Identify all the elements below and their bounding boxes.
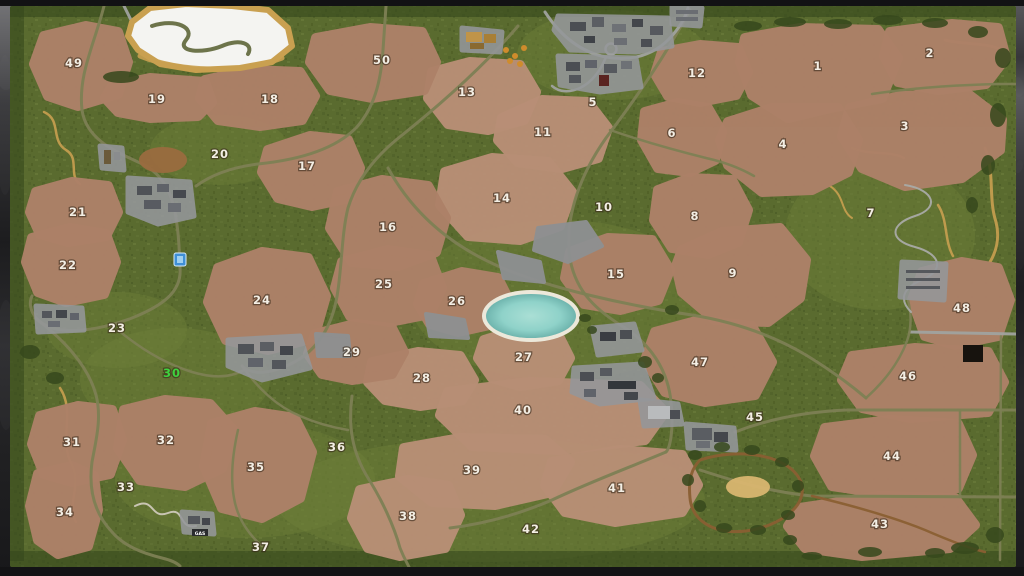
field-label-17: 17 <box>298 159 316 173</box>
field-label-11: 11 <box>534 125 552 139</box>
field-label-3: 3 <box>900 119 909 133</box>
dirt-patch <box>139 147 187 173</box>
field-label-14: 14 <box>493 191 511 205</box>
building <box>648 406 670 419</box>
tree-cluster <box>986 527 1004 543</box>
field-label-41: 41 <box>608 481 626 495</box>
building <box>906 278 940 281</box>
field-label-24: 24 <box>253 293 271 307</box>
field-label-16: 16 <box>379 220 397 234</box>
building <box>248 358 263 367</box>
tree-cluster <box>46 372 64 384</box>
water-station-icon-inner <box>177 256 183 263</box>
building <box>696 441 710 448</box>
tree-cluster <box>792 480 804 492</box>
building <box>470 43 484 49</box>
field-3 <box>842 94 1002 186</box>
material-heap <box>503 47 509 53</box>
building <box>566 62 580 71</box>
building <box>104 150 111 164</box>
settlement <box>462 28 502 52</box>
field-label-29: 29 <box>343 345 361 359</box>
dark-building-marker <box>963 345 983 362</box>
field-9 <box>676 228 806 322</box>
settlement <box>592 324 642 355</box>
field-label-9: 9 <box>728 266 737 280</box>
tree-cluster <box>694 500 706 512</box>
gas-sign-label: GAS <box>195 531 205 537</box>
field-label-2: 2 <box>925 46 934 60</box>
building <box>144 200 161 209</box>
tree-cluster <box>951 542 979 554</box>
building <box>173 190 186 198</box>
field-label-1: 1 <box>813 59 822 73</box>
building <box>466 32 482 42</box>
field-label-15: 15 <box>607 267 625 281</box>
building <box>621 61 632 69</box>
tree-cluster <box>925 548 945 558</box>
building <box>608 381 636 389</box>
material-heap <box>521 45 527 51</box>
building <box>584 36 595 43</box>
building <box>692 428 712 440</box>
field-18 <box>200 70 315 126</box>
field-label-40: 40 <box>514 403 532 417</box>
building <box>906 286 940 289</box>
field-label-45: 45 <box>746 410 764 424</box>
tree-cluster <box>783 535 797 545</box>
tree-cluster <box>990 103 1006 127</box>
field-label-7: 7 <box>866 206 875 220</box>
field-label-37: 37 <box>252 540 270 554</box>
building <box>42 311 52 318</box>
building <box>600 368 612 376</box>
building <box>114 152 120 160</box>
field-label-31: 31 <box>63 435 81 449</box>
field-label-28: 28 <box>413 371 431 385</box>
settlement <box>36 306 84 332</box>
building <box>188 516 200 524</box>
building <box>260 342 274 351</box>
tree-cluster <box>638 356 652 368</box>
screenshot-root: GAS1234567891011121314151617181920212223… <box>0 0 1024 576</box>
field-2 <box>884 24 1006 90</box>
tree-cluster <box>966 197 978 213</box>
field-label-18: 18 <box>261 92 279 106</box>
building <box>906 270 940 273</box>
field-label-46: 46 <box>899 369 917 383</box>
top-border <box>0 0 1024 6</box>
field-label-23: 23 <box>108 321 126 335</box>
building <box>614 38 627 45</box>
field-label-4: 4 <box>778 137 787 151</box>
building <box>569 75 581 83</box>
field-label-21: 21 <box>69 205 87 219</box>
building <box>585 60 597 68</box>
field-label-39: 39 <box>463 463 481 477</box>
tree-cluster <box>858 547 882 557</box>
map-area: GAS1234567891011121314151617181920212223… <box>10 4 1016 567</box>
settlement <box>640 400 682 426</box>
field-label-36: 36 <box>328 440 346 454</box>
field-13 <box>428 62 536 130</box>
field-label-13: 13 <box>458 85 476 99</box>
building <box>168 203 181 212</box>
settlement <box>100 146 124 170</box>
tree-cluster <box>873 15 903 25</box>
building <box>484 34 496 43</box>
building <box>676 17 698 21</box>
field-label-50: 50 <box>373 53 391 67</box>
left-border <box>0 0 10 576</box>
building <box>70 313 79 320</box>
tree-cluster <box>922 18 948 28</box>
field-label-5: 5 <box>588 95 597 109</box>
tree-cluster <box>734 21 762 31</box>
road <box>910 332 1016 334</box>
tree-cluster <box>103 71 139 83</box>
tree-cluster <box>750 525 766 535</box>
tree-cluster <box>716 523 732 533</box>
tree-cluster <box>682 474 694 486</box>
lake <box>486 294 576 338</box>
bottom-border <box>0 567 1024 576</box>
right-border <box>1016 0 1024 576</box>
tree-cluster <box>981 155 995 175</box>
building <box>650 26 663 35</box>
field-label-47: 47 <box>691 355 709 369</box>
settlement <box>128 178 194 224</box>
field-label-33: 33 <box>117 480 135 494</box>
field-label-20: 20 <box>211 147 229 161</box>
field-label-19: 19 <box>148 92 166 106</box>
building <box>280 346 293 355</box>
field-label-6: 6 <box>667 126 676 140</box>
building <box>56 310 67 318</box>
building <box>624 392 638 400</box>
field-label-10: 10 <box>595 200 613 214</box>
building <box>604 64 617 73</box>
building <box>592 17 604 27</box>
field-label-25: 25 <box>375 277 393 291</box>
building <box>272 360 286 369</box>
field-label-12: 12 <box>688 66 706 80</box>
building <box>202 518 210 525</box>
field-label-35: 35 <box>247 460 265 474</box>
road <box>1000 336 1001 560</box>
building <box>714 432 728 442</box>
settlement-ground <box>100 146 124 170</box>
settlement <box>672 6 702 26</box>
field-label-34: 34 <box>56 505 74 519</box>
tree-cluster <box>968 26 988 38</box>
building <box>157 184 169 192</box>
material-heap <box>507 58 513 64</box>
field-label-8: 8 <box>690 209 699 223</box>
settlement-ground <box>592 324 642 355</box>
tree-cluster <box>824 19 852 29</box>
building <box>641 39 652 47</box>
field-label-30: 30 <box>163 366 181 380</box>
tree-cluster <box>579 314 591 322</box>
material-heap <box>512 53 518 59</box>
sand-playground <box>726 476 770 498</box>
building <box>612 24 626 32</box>
building <box>632 19 643 27</box>
settlement <box>554 16 672 52</box>
tree-cluster <box>781 510 795 520</box>
building <box>580 372 594 381</box>
tree-cluster <box>802 552 822 560</box>
tree-cluster <box>774 17 806 27</box>
building <box>600 332 616 341</box>
tree-cluster <box>744 445 760 455</box>
field-label-49: 49 <box>65 56 83 70</box>
building <box>670 410 680 419</box>
field-4 <box>720 108 858 192</box>
field-label-48: 48 <box>953 301 971 315</box>
field-label-44: 44 <box>883 449 901 463</box>
settlement <box>900 262 946 300</box>
building <box>584 389 596 397</box>
field-label-32: 32 <box>157 433 175 447</box>
forest-strip <box>10 6 24 561</box>
field-label-26: 26 <box>448 294 466 308</box>
building <box>137 186 152 195</box>
tree-cluster <box>688 450 702 460</box>
field-6 <box>642 103 722 172</box>
field-label-42: 42 <box>522 522 540 536</box>
tree-cluster <box>20 345 40 359</box>
settlement <box>558 56 641 92</box>
building <box>620 330 632 339</box>
field-label-27: 27 <box>515 350 533 364</box>
farm-map-overview: GAS1234567891011121314151617181920212223… <box>0 0 1024 576</box>
tree-cluster <box>587 326 597 334</box>
tree-cluster <box>995 48 1011 68</box>
building <box>676 10 698 14</box>
field-label-22: 22 <box>59 258 77 272</box>
field-label-38: 38 <box>399 509 417 523</box>
field-label-43: 43 <box>871 517 889 531</box>
tree-cluster <box>775 457 789 467</box>
material-heap <box>517 61 523 67</box>
tree-cluster <box>665 305 679 315</box>
tree-cluster <box>714 442 730 452</box>
building <box>570 22 586 31</box>
building <box>238 344 254 354</box>
settlement-ground <box>672 6 702 26</box>
building <box>599 75 609 86</box>
settlement <box>228 336 310 380</box>
building <box>48 321 60 327</box>
tree-cluster <box>652 373 664 383</box>
